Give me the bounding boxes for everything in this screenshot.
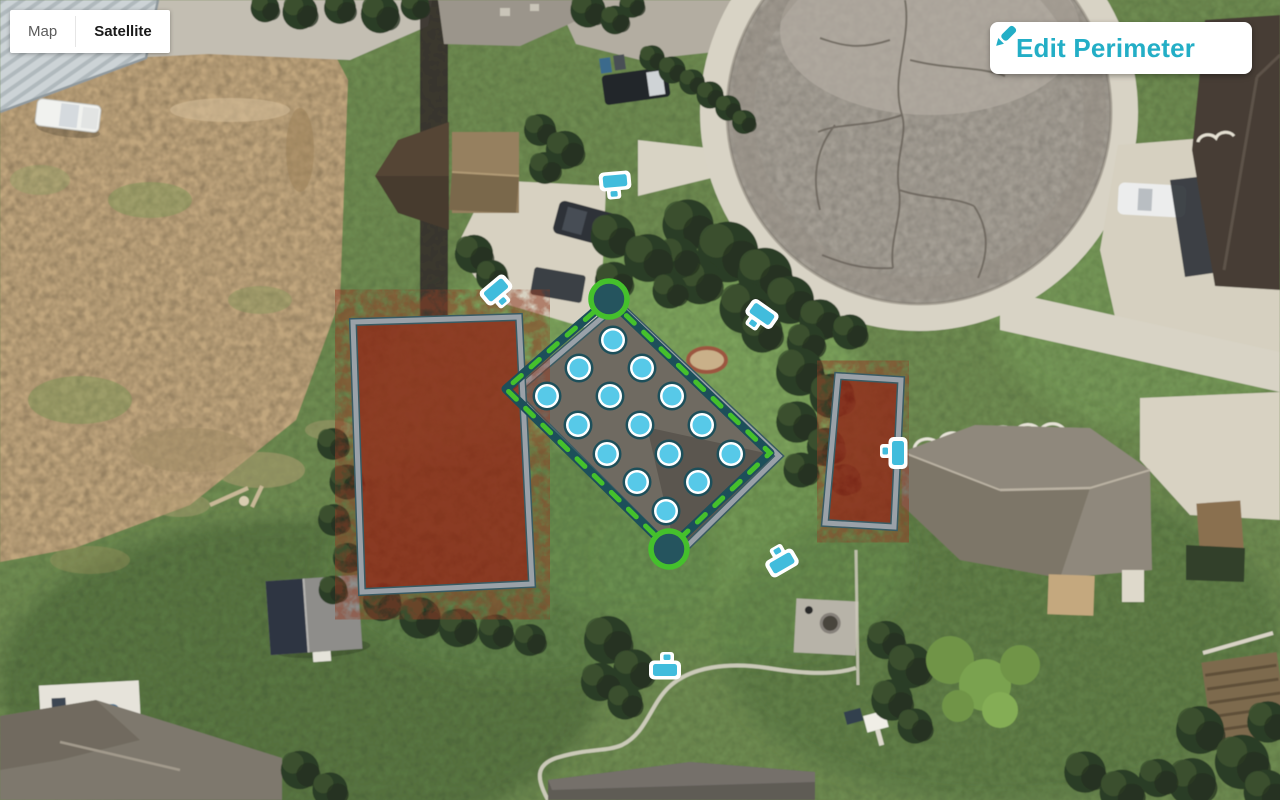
map-type-satellite-button[interactable]: Satellite — [76, 10, 170, 53]
sprinkler-head[interactable] — [717, 440, 746, 469]
perimeter-vertex-marker[interactable] — [591, 281, 627, 317]
map-type-control: Map Satellite — [10, 10, 170, 53]
sprinkler-head[interactable] — [565, 354, 594, 383]
sprinkler-head[interactable] — [655, 440, 684, 469]
map-view: Map Satellite Edit Perimeter — [0, 0, 1280, 800]
sprinkler-head[interactable] — [658, 382, 687, 411]
sprinkler-head[interactable] — [596, 382, 625, 411]
map-type-map-button[interactable]: Map — [10, 10, 75, 53]
sprinkler-head[interactable] — [652, 497, 681, 526]
sprinkler-head[interactable] — [599, 326, 628, 355]
sprinkler-head[interactable] — [623, 468, 652, 497]
edit-perimeter-button[interactable]: Edit Perimeter — [990, 22, 1252, 74]
sprinkler-head[interactable] — [533, 382, 562, 411]
perimeter-vertex-marker[interactable] — [651, 531, 687, 567]
sprinkler-head[interactable] — [628, 354, 657, 383]
sprinkler-head[interactable] — [593, 440, 622, 469]
edit-perimeter-label: Edit Perimeter — [1016, 33, 1195, 64]
sprinkler-head[interactable] — [626, 411, 655, 440]
sprinkler-head[interactable] — [564, 411, 593, 440]
pencil-icon — [990, 22, 1020, 52]
zone-red-left[interactable] — [353, 317, 532, 592]
sprinkler-head[interactable] — [688, 411, 717, 440]
map-canvas[interactable] — [0, 0, 1280, 800]
sprinkler-head[interactable] — [684, 468, 713, 497]
